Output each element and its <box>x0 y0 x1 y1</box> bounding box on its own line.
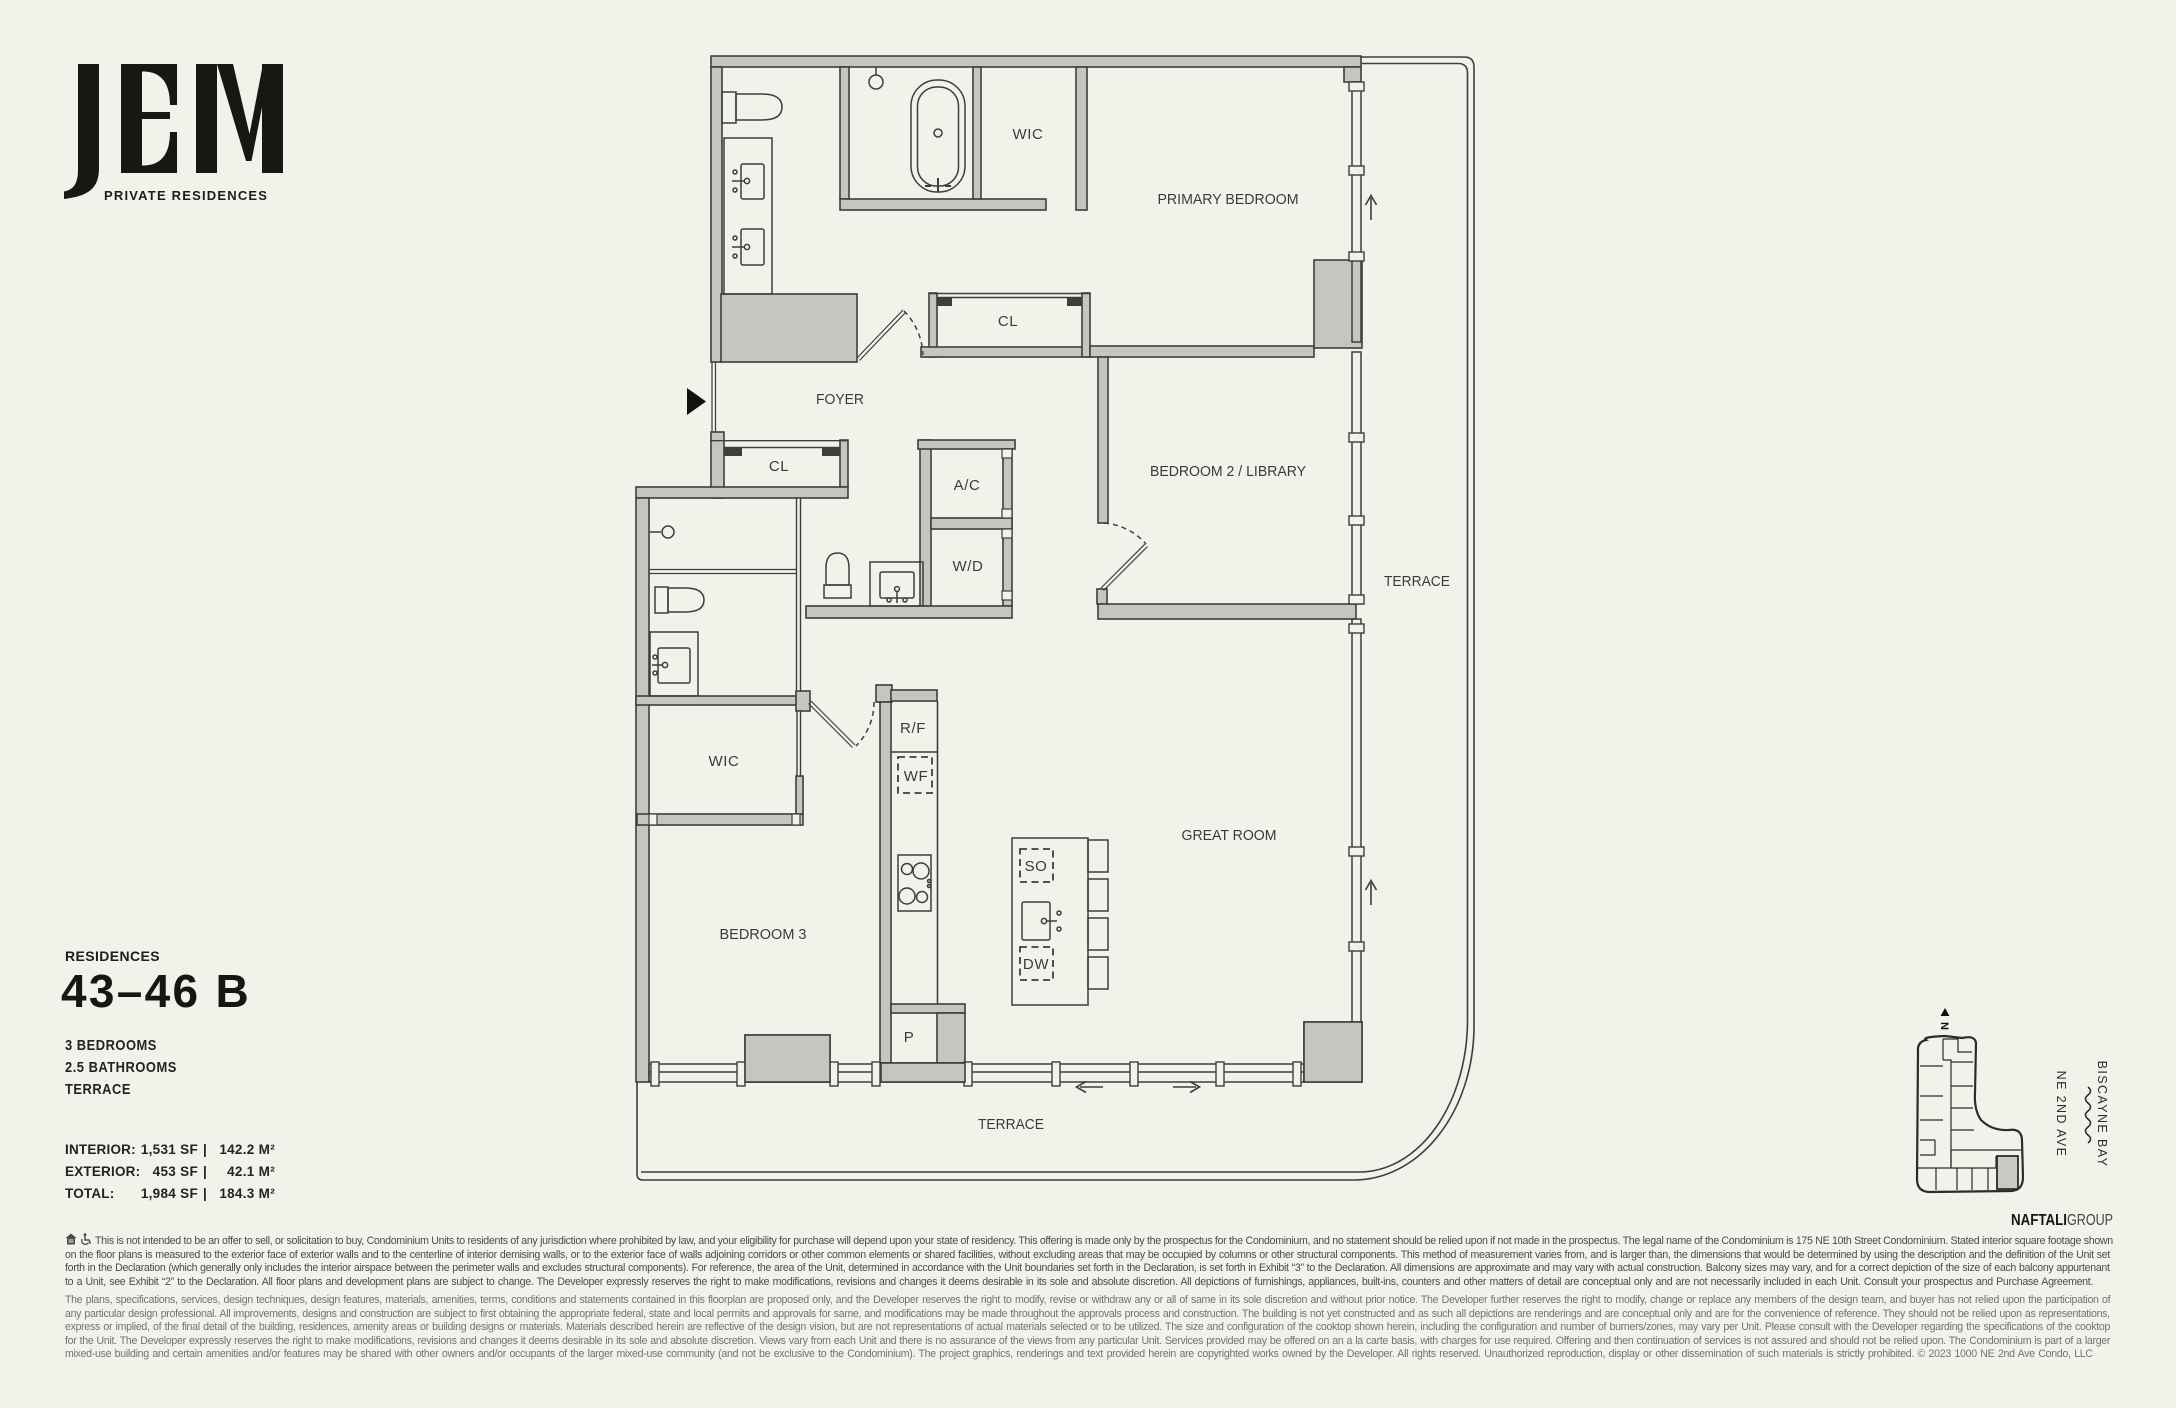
svg-text:WIC: WIC <box>709 753 740 770</box>
svg-text:R/F: R/F <box>900 720 926 737</box>
svg-text:WF: WF <box>904 768 929 785</box>
svg-text:NAFTALI: NAFTALI <box>2011 1212 2067 1229</box>
svg-text:A/C: A/C <box>954 477 981 494</box>
svg-text:CL: CL <box>769 458 789 475</box>
svg-text:TERRACE: TERRACE <box>1384 573 1450 590</box>
svg-text:DW: DW <box>1023 956 1049 973</box>
svg-text:GROUP: GROUP <box>2067 1212 2113 1229</box>
svg-text:BEDROOM 3: BEDROOM 3 <box>720 926 807 943</box>
svg-text:W/D: W/D <box>953 558 984 575</box>
svg-text:TERRACE: TERRACE <box>978 1116 1044 1133</box>
svg-text:PRIMARY BEDROOM: PRIMARY BEDROOM <box>1158 191 1299 208</box>
svg-text:GREAT ROOM: GREAT ROOM <box>1182 827 1277 844</box>
svg-text:CL: CL <box>998 313 1018 330</box>
svg-text:BISCAYNE BAY: BISCAYNE BAY <box>2095 1061 2109 1168</box>
svg-text:FOYER: FOYER <box>816 391 864 408</box>
svg-text:NE 2ND AVE: NE 2ND AVE <box>2054 1071 2068 1158</box>
svg-text:P: P <box>904 1029 915 1046</box>
svg-text:BEDROOM 2 / LIBRARY: BEDROOM 2 / LIBRARY <box>1150 463 1306 480</box>
svg-text:SO: SO <box>1025 858 1048 875</box>
svg-text:WIC: WIC <box>1013 126 1044 143</box>
svg-text:N: N <box>1938 1022 1950 1030</box>
